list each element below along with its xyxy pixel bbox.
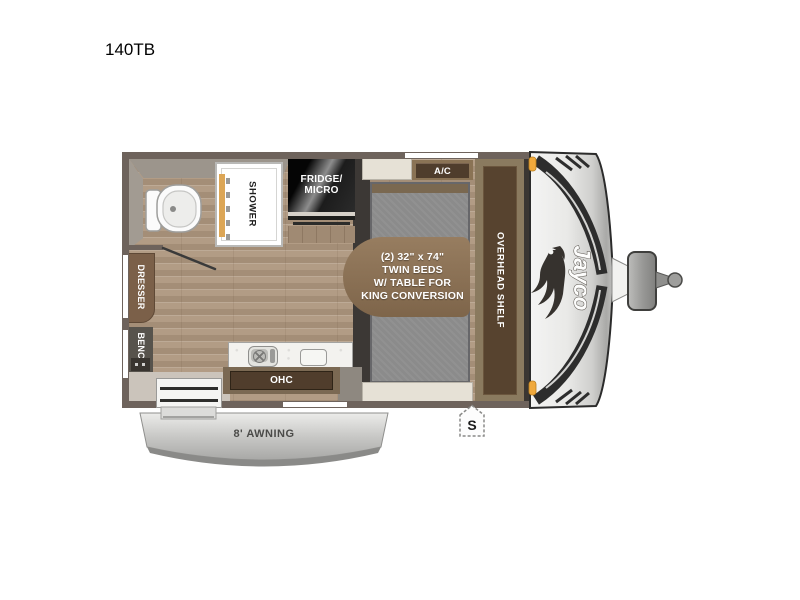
- marker-light-top: [529, 157, 536, 171]
- toilet-flush-dot: [170, 206, 176, 212]
- front-cap: Jayco: [529, 152, 613, 408]
- toilet: [146, 185, 201, 232]
- speaker-marker: S: [460, 406, 484, 437]
- jayco-brand-label: Jayco: [569, 245, 595, 310]
- hitch-tongue: [612, 252, 682, 310]
- hitch-ball: [668, 273, 682, 287]
- marker-light-bottom: [529, 381, 536, 395]
- propane-cover: [628, 252, 656, 310]
- floorplan-page: 140TB FRIDGE/ MICRO A/C (2) 32" x 74" TW…: [0, 0, 800, 600]
- speaker-marker-label: S: [467, 417, 476, 433]
- bathroom-door-swing: [163, 248, 215, 269]
- entry-step-lower: [161, 407, 216, 419]
- floorplan-graphics: 8' AWNING: [0, 0, 800, 600]
- awning: 8' AWNING: [140, 413, 388, 467]
- awning-label: 8' AWNING: [233, 428, 294, 440]
